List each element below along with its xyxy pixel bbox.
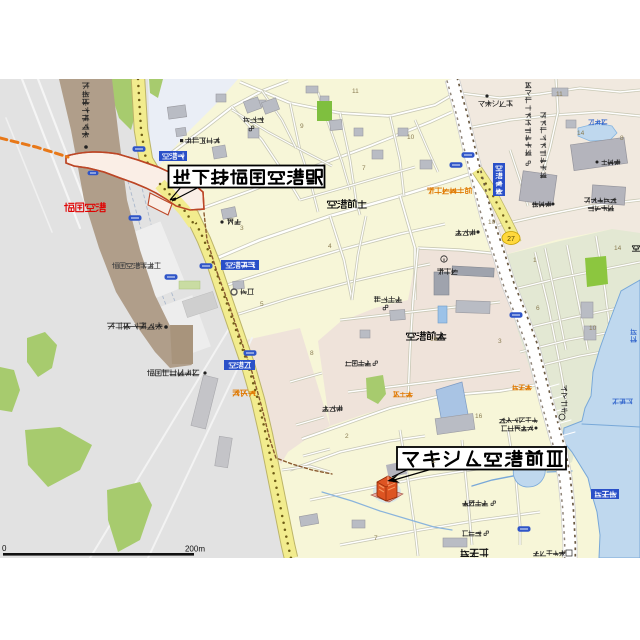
svg-text:5: 5	[260, 301, 264, 308]
svg-text:1: 1	[533, 257, 537, 264]
svg-text:16: 16	[475, 413, 483, 420]
svg-text:200m: 200m	[185, 545, 205, 554]
svg-text:10: 10	[488, 219, 496, 226]
svg-text:11: 11	[352, 88, 359, 95]
svg-text:11: 11	[556, 91, 563, 98]
svg-text:14: 14	[577, 130, 585, 137]
svg-text:3: 3	[240, 225, 244, 232]
svg-text:3: 3	[498, 338, 502, 345]
svg-text:9: 9	[300, 123, 304, 130]
svg-text:27: 27	[507, 236, 515, 243]
svg-text:6: 6	[536, 305, 540, 312]
svg-text:7: 7	[362, 165, 366, 172]
svg-text:8: 8	[620, 135, 624, 142]
svg-text:10: 10	[589, 325, 597, 332]
svg-text:16: 16	[430, 336, 438, 343]
svg-text:8: 8	[310, 350, 314, 357]
svg-text:10: 10	[407, 134, 415, 141]
svg-text:14: 14	[614, 245, 622, 252]
svg-text:7: 7	[374, 535, 378, 542]
svg-text:0: 0	[2, 544, 7, 553]
svg-text:2: 2	[345, 433, 349, 440]
svg-text:4: 4	[328, 243, 332, 250]
svg-text:2: 2	[432, 458, 436, 465]
